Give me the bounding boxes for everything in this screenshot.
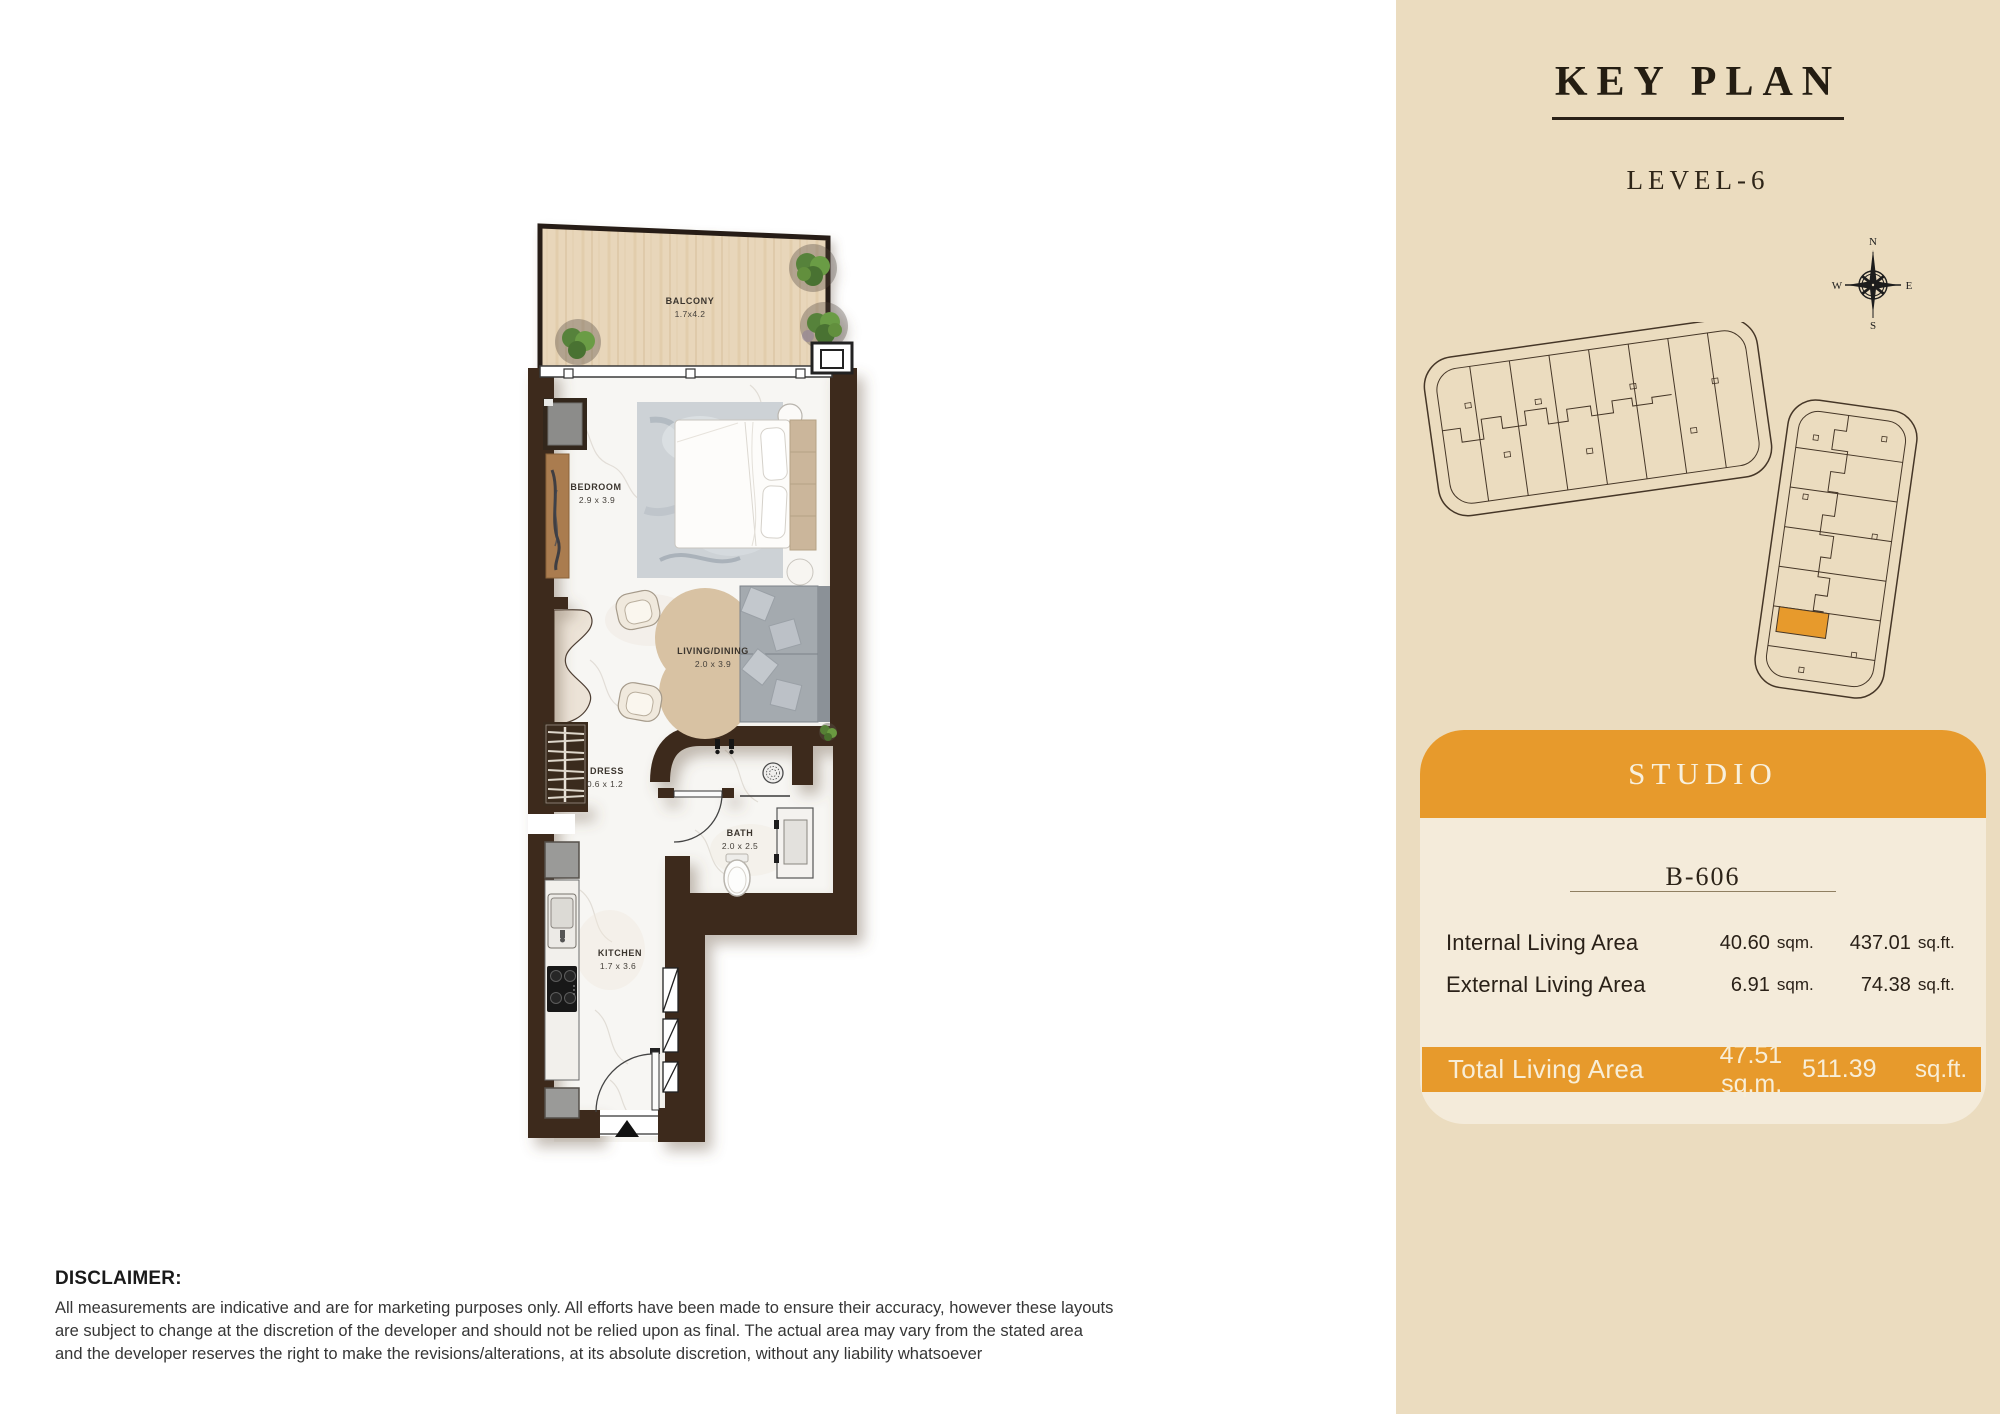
row-label: Internal Living Area — [1446, 930, 1658, 956]
balcony-label: BALCONY — [666, 296, 715, 306]
corner-plant-icon — [819, 723, 837, 741]
row-sqm-value: 6.91 — [1658, 974, 1770, 997]
svg-text:N: N — [1869, 236, 1877, 248]
total-label: Total Living Area — [1422, 1054, 1656, 1085]
plant-icon — [789, 244, 837, 292]
disclaimer-line: are subject to change at the discretion … — [55, 1320, 1385, 1343]
dress-label: DRESS — [590, 766, 624, 776]
kitchen-dims: 1.7 x 3.6 — [600, 961, 636, 971]
unit-info-card: STUDIO B-606 Internal Living Area 40.60 … — [1420, 730, 1986, 1124]
unit-number: B-606 — [1420, 862, 1986, 892]
bedroom-dims: 2.9 x 3.9 — [579, 495, 615, 505]
keyplan-panel: KEY PLAN LEVEL-6 N S W E — [1396, 0, 2000, 1414]
sofa — [740, 586, 830, 722]
balcony: BALCONY 1.7x4.2 — [540, 226, 848, 368]
wardrobe — [543, 722, 588, 806]
level-label: LEVEL-6 — [1396, 165, 2000, 196]
compass-rose-icon: N S W E — [1828, 232, 1918, 332]
tv-console — [543, 398, 587, 450]
building-b-outline — [1751, 396, 1920, 701]
total-area-bar: Total Living Area 47.51 sq.m. 511.39 sq.… — [1422, 1047, 1981, 1092]
wall-recess — [528, 814, 575, 834]
keyplan-map — [1414, 322, 1980, 708]
living-dims: 2.0 x 3.9 — [695, 659, 731, 669]
appliance — [545, 842, 579, 878]
row-sqm-unit: sqm. — [1770, 933, 1825, 953]
pouf — [787, 559, 813, 585]
appliance — [545, 1088, 579, 1118]
row-sqft-unit: sq.ft. — [1911, 933, 1970, 953]
bath-dims: 2.0 x 2.5 — [722, 841, 758, 851]
total-sqft: 511.39 — [1782, 1055, 1876, 1084]
living-label: LIVING/DINING — [677, 646, 749, 656]
disclaimer-line: and the developer reserves the right to … — [55, 1343, 1385, 1366]
unit-type-label: STUDIO — [1628, 756, 1778, 792]
kitchen-label: KITCHEN — [598, 948, 642, 958]
row-sqft-unit: sq.ft. — [1911, 975, 1970, 995]
bedroom-label: BEDROOM — [570, 482, 621, 492]
row-sqft-value: 74.38 — [1825, 974, 1911, 997]
total-sqft-unit: sq.ft. — [1877, 1056, 1981, 1084]
window-wall — [540, 366, 832, 378]
bed — [675, 420, 816, 550]
floor-plan: BALCONY 1.7x4.2 — [500, 190, 900, 1170]
area-row-internal: Internal Living Area 40.60 sqm. 437.01 s… — [1446, 922, 1970, 964]
keyplan-title-rule — [1552, 117, 1844, 120]
disclaimer: DISCLAIMER: All measurements are indicat… — [55, 1268, 1385, 1366]
vanity-sink — [774, 808, 813, 878]
shower-drain-icon — [763, 763, 783, 783]
plant-icon — [555, 319, 601, 365]
unit-number-rule — [1570, 891, 1836, 892]
svg-text:W: W — [1832, 280, 1843, 292]
stove-icon — [547, 966, 577, 1012]
row-sqft-value: 437.01 — [1825, 932, 1911, 955]
row-sqm-value: 40.60 — [1658, 932, 1770, 955]
sink-icon — [548, 894, 576, 948]
disclaimer-line: All measurements are indicative and are … — [55, 1297, 1385, 1320]
row-label: External Living Area — [1446, 972, 1658, 998]
area-row-external: External Living Area 6.91 sqm. 74.38 sq.… — [1446, 964, 1970, 1006]
disclaimer-title: DISCLAIMER: — [55, 1268, 1385, 1290]
row-sqm-unit: sqm. — [1770, 975, 1825, 995]
building-a-outline — [1421, 322, 1776, 520]
balcony-dims: 1.7x4.2 — [675, 309, 706, 319]
toilet-icon — [724, 854, 750, 896]
closet-niches — [663, 968, 678, 1092]
bath-label: BATH — [727, 828, 754, 838]
unit-type-header: STUDIO — [1420, 730, 1986, 818]
area-rows: Internal Living Area 40.60 sqm. 437.01 s… — [1446, 922, 1970, 1006]
total-sqm: 47.51 sq.m. — [1656, 1041, 1782, 1099]
column — [812, 343, 852, 373]
dresser — [546, 454, 569, 578]
keyplan-title: KEY PLAN — [1396, 58, 2000, 106]
dress-dims: 0.6 x 1.2 — [587, 779, 623, 789]
svg-text:E: E — [1906, 280, 1913, 292]
